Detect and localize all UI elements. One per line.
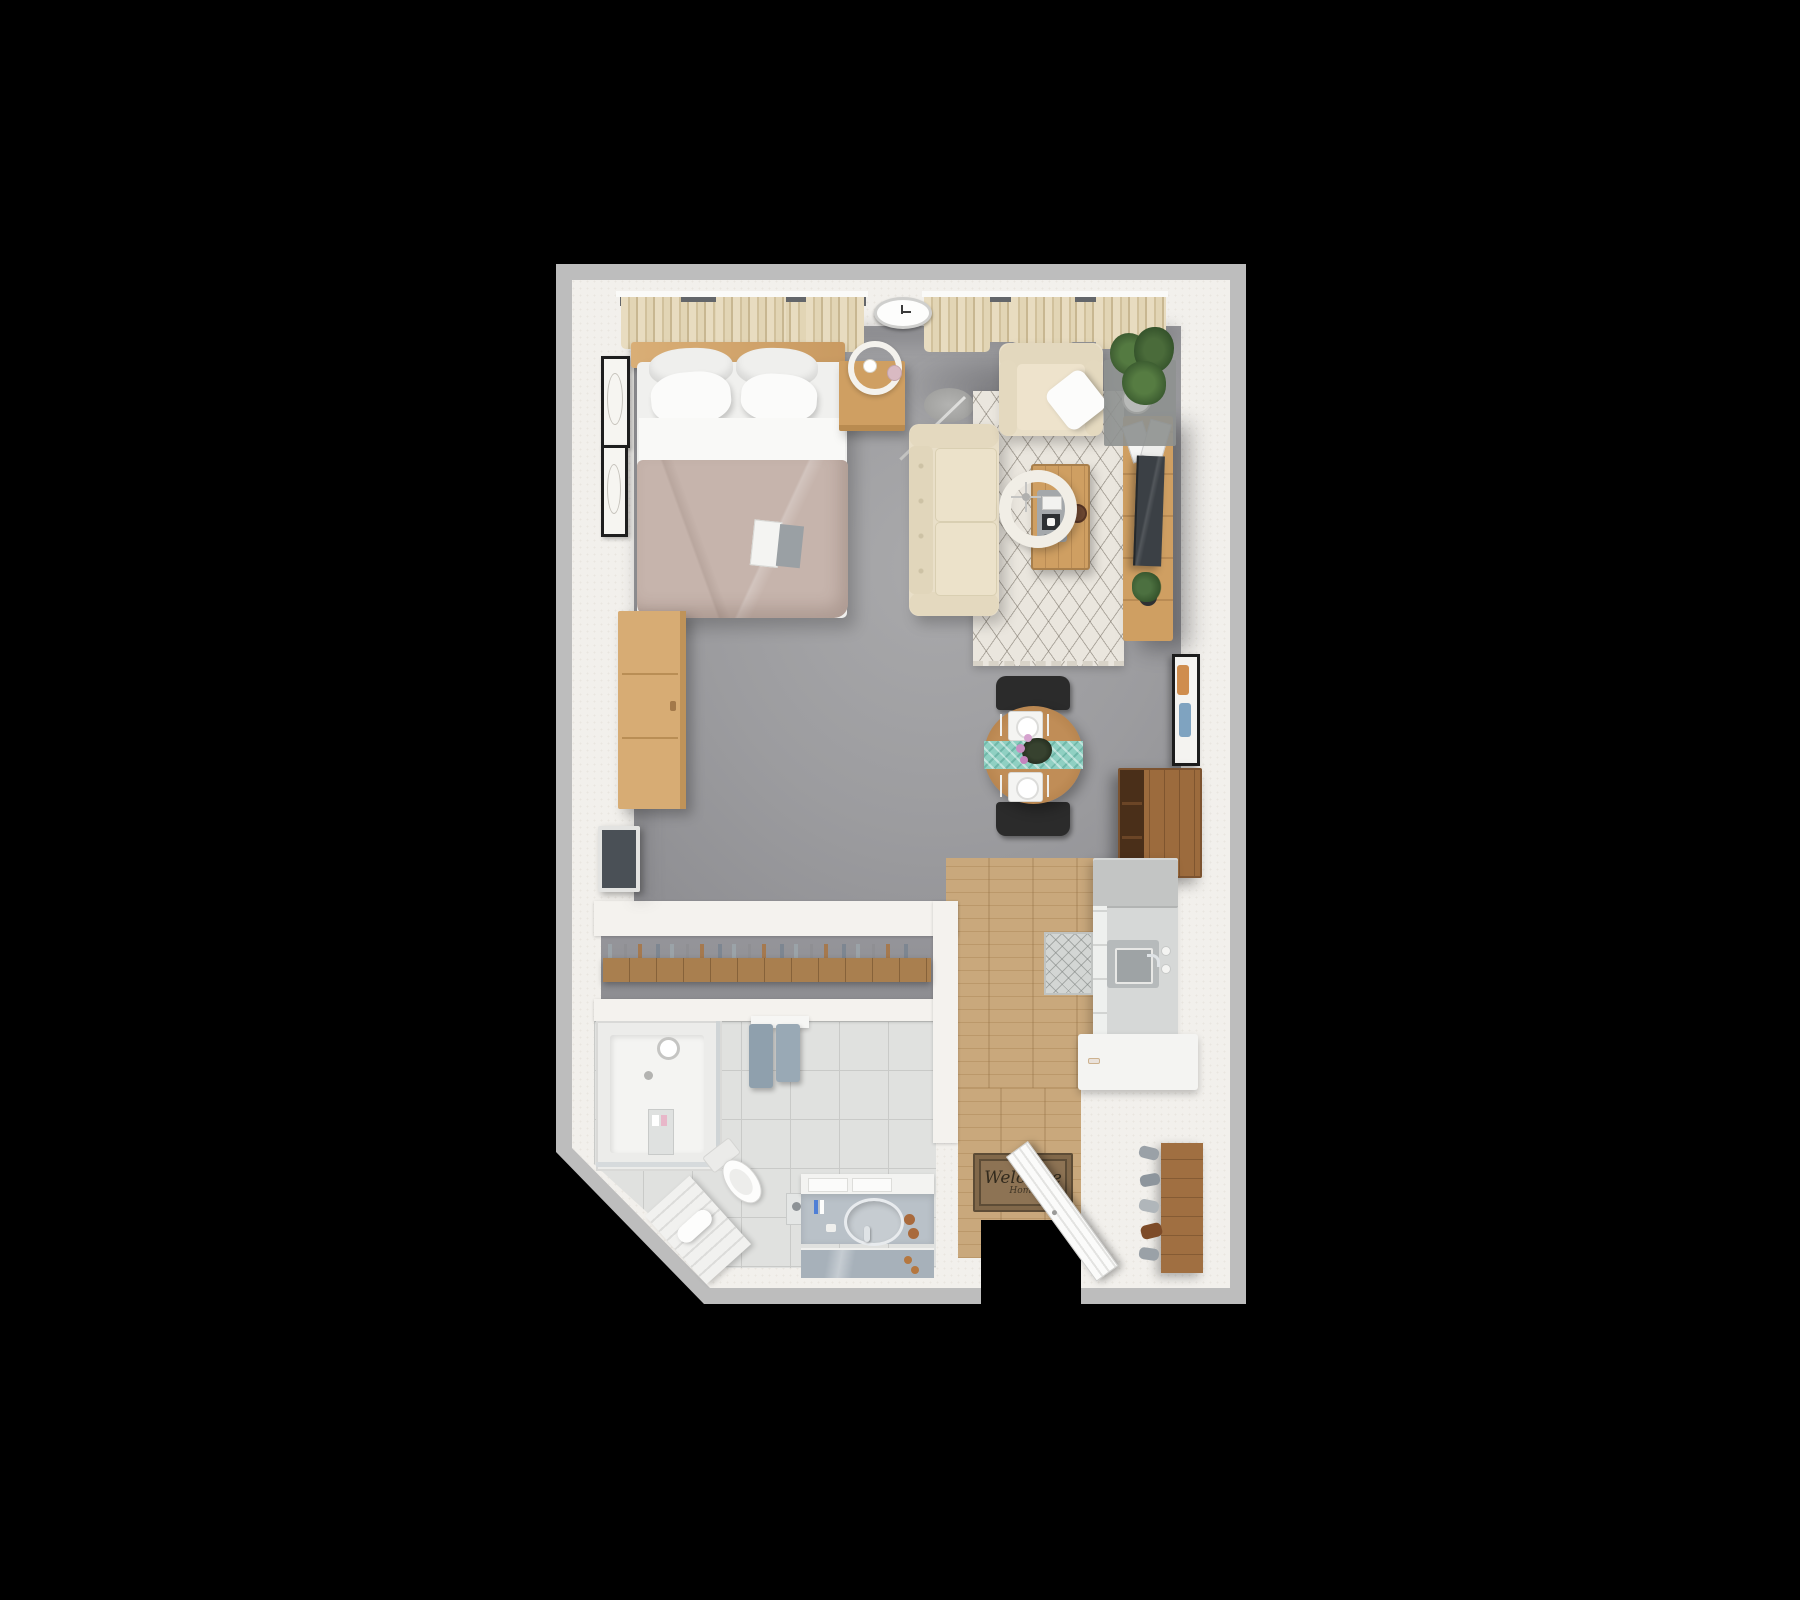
sleeping-area-region (636, 328, 916, 808)
bathroom-region (594, 1021, 936, 1268)
framed-art-right-wall (1172, 654, 1200, 766)
frame-art (607, 464, 621, 514)
clock-hand (902, 311, 911, 313)
picture-frame (601, 356, 630, 448)
art-color (1179, 703, 1191, 737)
tv-screen (602, 830, 636, 888)
picture-frame (601, 445, 628, 537)
entry-region (958, 1090, 1203, 1260)
dining-area-region (976, 674, 1176, 874)
art-color (1177, 665, 1189, 695)
wall-clock (874, 297, 932, 329)
wall-mainroom-closet (594, 901, 958, 936)
wall-mounted-tv (598, 826, 640, 892)
closet-corridor-region (601, 936, 933, 999)
frame-art (607, 373, 623, 425)
studio-floor-plan: Welcome Home (556, 264, 1246, 1304)
living-area-region (906, 328, 1176, 668)
kitchen-region (946, 858, 1178, 1088)
